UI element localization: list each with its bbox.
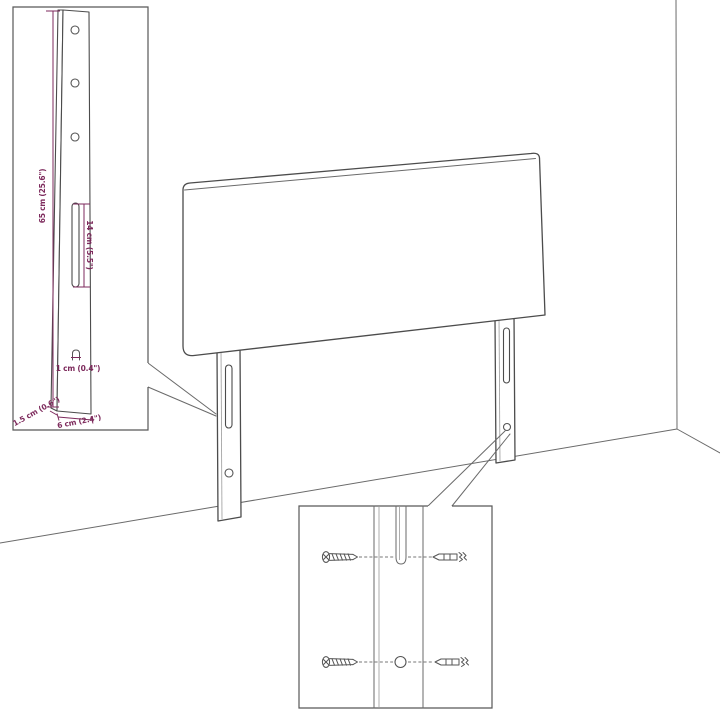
slot-width-dimension-label: 1 cm (0.4") xyxy=(56,364,101,373)
headboard-diagram: 65 cm (25.6") 14 cm (5.5") 1 cm (0.4") 1… xyxy=(0,0,720,720)
callout-line xyxy=(148,363,216,414)
screw-hole-icon xyxy=(71,26,79,34)
left-leg xyxy=(217,346,241,521)
headboard-panel xyxy=(183,153,545,355)
mount-slot-icon xyxy=(504,328,510,383)
mount-slot-icon xyxy=(226,365,233,428)
slot-length-dimension-label: 14 cm (5.5") xyxy=(85,220,94,270)
height-dimension-label: 65 cm (25.6") xyxy=(38,169,47,224)
screw-hole-icon xyxy=(71,79,79,87)
screw-hole-icon xyxy=(395,657,406,668)
callout-line xyxy=(148,387,216,416)
screw-hole-icon xyxy=(71,133,79,141)
screw-hole-icon xyxy=(225,469,233,477)
leg-detail-inset: 65 cm (25.6") 14 cm (5.5") 1 cm (0.4") 1… xyxy=(11,7,148,430)
callout-wedge-left xyxy=(148,363,216,416)
callout-line xyxy=(452,434,510,506)
wall-corner-line xyxy=(676,0,677,429)
diagram-canvas: 65 cm (25.6") 14 cm (5.5") 1 cm (0.4") 1… xyxy=(0,0,720,720)
screw-hole-icon xyxy=(504,424,511,431)
floor-line-right xyxy=(677,429,720,453)
mount-detail-inset xyxy=(299,506,492,708)
mount-slot-icon xyxy=(72,203,79,287)
panel-outline xyxy=(183,153,545,355)
